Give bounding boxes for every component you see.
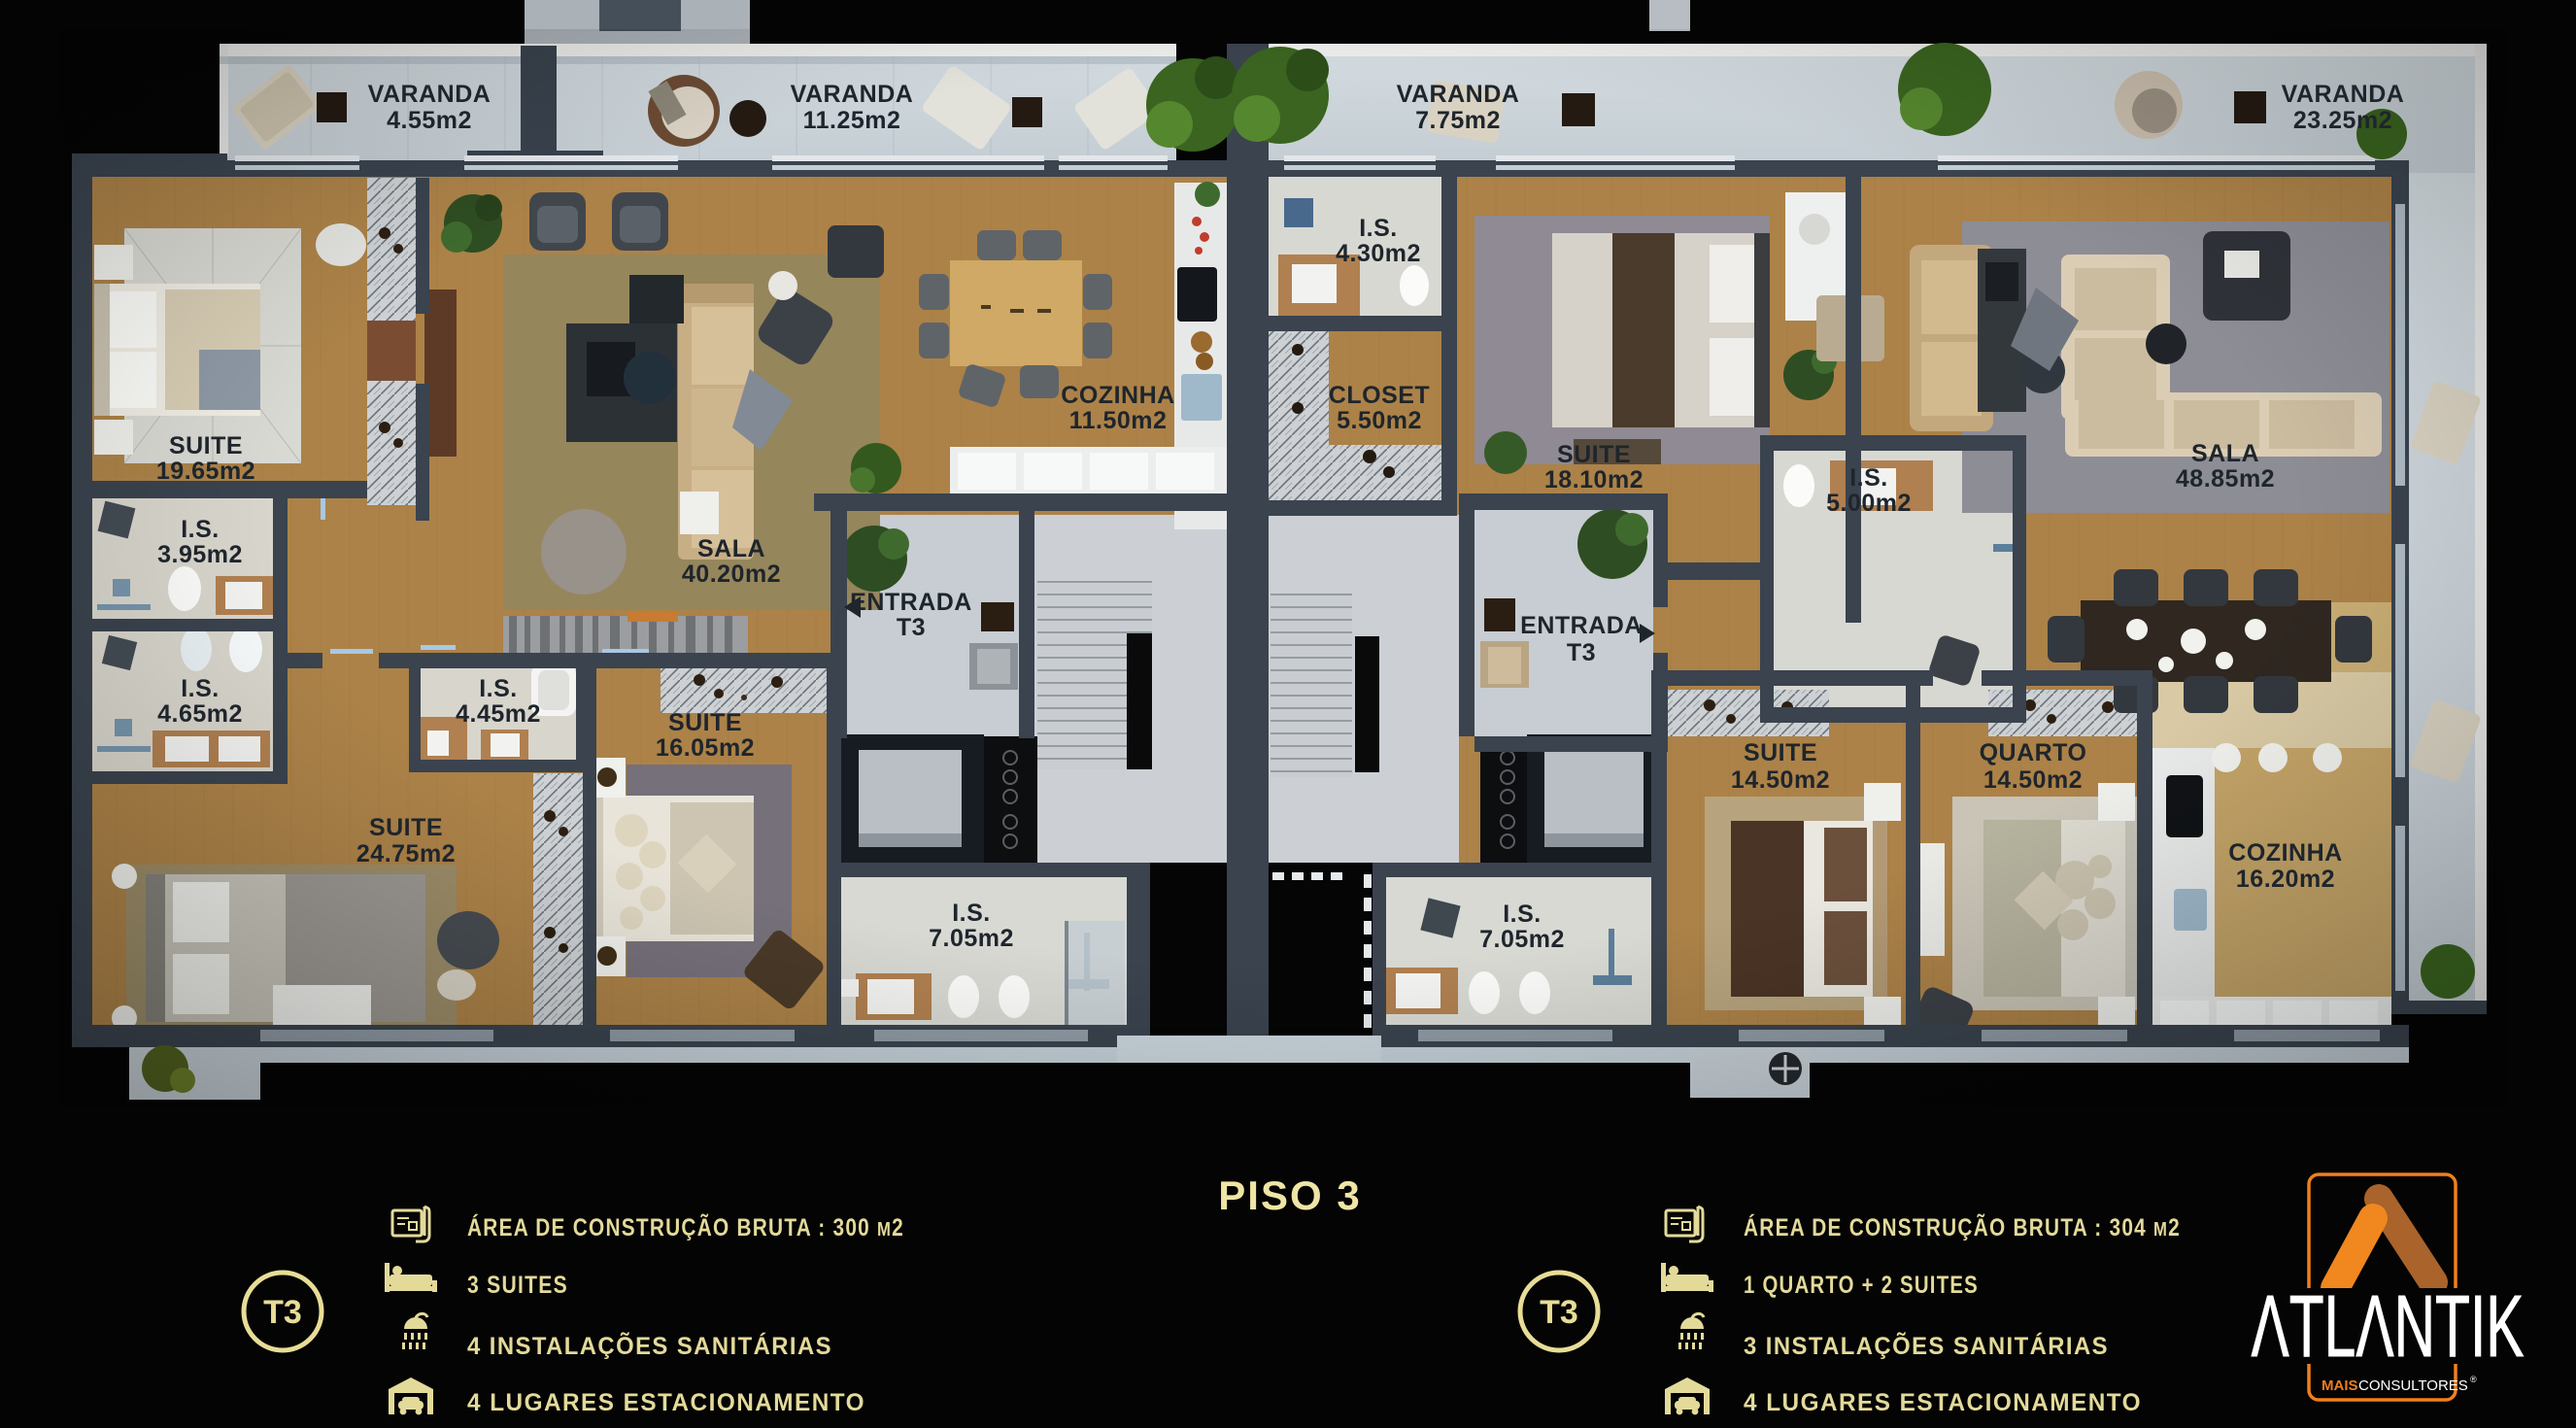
svg-text:48.85m2: 48.85m2 xyxy=(2176,465,2275,493)
svg-text:ΛTLΛNTIK: ΛTLΛNTIK xyxy=(2252,1278,2525,1376)
svg-text:MAIS: MAIS xyxy=(2322,1377,2358,1394)
svg-text:4.30m2: 4.30m2 xyxy=(1336,240,1421,267)
svg-text:SUITE: SUITE xyxy=(1744,739,1817,766)
svg-text:COZINHA: COZINHA xyxy=(2228,839,2342,867)
svg-text:3 INSTALAÇÕES SANITÁRIAS: 3 INSTALAÇÕES SANITÁRIAS xyxy=(1744,1331,2109,1360)
svg-text:SALA: SALA xyxy=(2191,440,2259,467)
svg-text:19.65m2: 19.65m2 xyxy=(156,458,255,485)
svg-text:4 LUGARES ESTACIONAMENTO: 4 LUGARES ESTACIONAMENTO xyxy=(1744,1389,2142,1416)
svg-text:COZINHA: COZINHA xyxy=(1061,382,1174,409)
svg-text:5.50m2: 5.50m2 xyxy=(1337,407,1422,434)
svg-text:11.25m2: 11.25m2 xyxy=(803,107,901,134)
svg-text:23.25m2: 23.25m2 xyxy=(2293,107,2392,134)
svg-text:VARANDA: VARANDA xyxy=(2282,81,2405,108)
svg-text:1 QUARTO + 2 SUITES: 1 QUARTO + 2 SUITES xyxy=(1744,1272,1979,1299)
svg-text:T3: T3 xyxy=(897,614,926,641)
svg-text:4 LUGARES ESTACIONAMENTO: 4 LUGARES ESTACIONAMENTO xyxy=(467,1389,865,1416)
svg-text:I.S.: I.S. xyxy=(181,675,220,702)
svg-text:I.S.: I.S. xyxy=(952,900,991,927)
svg-text:5.00m2: 5.00m2 xyxy=(1826,490,1912,517)
svg-text:SUITE: SUITE xyxy=(1557,441,1631,468)
svg-text:VARANDA: VARANDA xyxy=(791,81,914,108)
svg-text:CONSULTORES: CONSULTORES xyxy=(2358,1377,2468,1394)
svg-text:T3: T3 xyxy=(1567,639,1596,666)
svg-text:14.50m2: 14.50m2 xyxy=(1731,766,1830,794)
svg-text:SUITE: SUITE xyxy=(369,814,443,841)
svg-text:18.10m2: 18.10m2 xyxy=(1544,466,1644,493)
svg-text:16.20m2: 16.20m2 xyxy=(2236,866,2335,893)
svg-text:3.95m2: 3.95m2 xyxy=(157,541,243,568)
svg-text:SUITE: SUITE xyxy=(169,432,243,459)
svg-text:7.75m2: 7.75m2 xyxy=(1415,107,1501,134)
svg-text:16.05m2: 16.05m2 xyxy=(656,734,755,762)
svg-text:ENTRADA: ENTRADA xyxy=(1520,612,1643,639)
svg-text:24.75m2: 24.75m2 xyxy=(356,840,456,867)
svg-text:T3: T3 xyxy=(263,1294,302,1331)
svg-text:®: ® xyxy=(2470,1375,2477,1384)
svg-text:VARANDA: VARANDA xyxy=(368,81,491,108)
svg-text:T3: T3 xyxy=(1540,1294,1578,1331)
svg-text:3 SUITES: 3 SUITES xyxy=(467,1272,568,1299)
svg-text:CLOSET: CLOSET xyxy=(1329,382,1430,409)
svg-text:ÁREA DE CONSTRUÇÃO BRUTA : 30: ÁREA DE CONSTRUÇÃO BRUTA : 300 M2 xyxy=(467,1212,904,1241)
svg-text:ÁREA DE CONSTRUÇÃO BRUTA : 30: ÁREA DE CONSTRUÇÃO BRUTA : 304 M2 xyxy=(1744,1212,2181,1241)
svg-text:SALA: SALA xyxy=(697,535,765,562)
svg-text:11.50m2: 11.50m2 xyxy=(1069,407,1168,434)
svg-text:14.50m2: 14.50m2 xyxy=(1983,766,2083,794)
svg-text:SUITE: SUITE xyxy=(668,709,742,736)
svg-text:4.65m2: 4.65m2 xyxy=(157,700,243,728)
svg-text:VARANDA: VARANDA xyxy=(1397,81,1520,108)
svg-text:4.45m2: 4.45m2 xyxy=(456,700,541,728)
svg-text:I.S.: I.S. xyxy=(1359,215,1398,242)
svg-text:4 INSTALAÇÕES SANITÁRIAS: 4 INSTALAÇÕES SANITÁRIAS xyxy=(467,1331,832,1360)
svg-text:7.05m2: 7.05m2 xyxy=(1479,926,1565,953)
svg-text:QUARTO: QUARTO xyxy=(1980,739,2087,766)
svg-text:I.S.: I.S. xyxy=(1849,464,1888,492)
svg-text:ENTRADA: ENTRADA xyxy=(850,589,972,616)
svg-text:PISO 3: PISO 3 xyxy=(1218,1173,1361,1218)
svg-text:4.55m2: 4.55m2 xyxy=(387,107,472,134)
svg-text:I.S.: I.S. xyxy=(1503,901,1542,928)
svg-text:40.20m2: 40.20m2 xyxy=(682,561,781,588)
svg-text:I.S.: I.S. xyxy=(479,675,518,702)
svg-text:7.05m2: 7.05m2 xyxy=(929,925,1014,952)
svg-text:I.S.: I.S. xyxy=(181,516,220,543)
